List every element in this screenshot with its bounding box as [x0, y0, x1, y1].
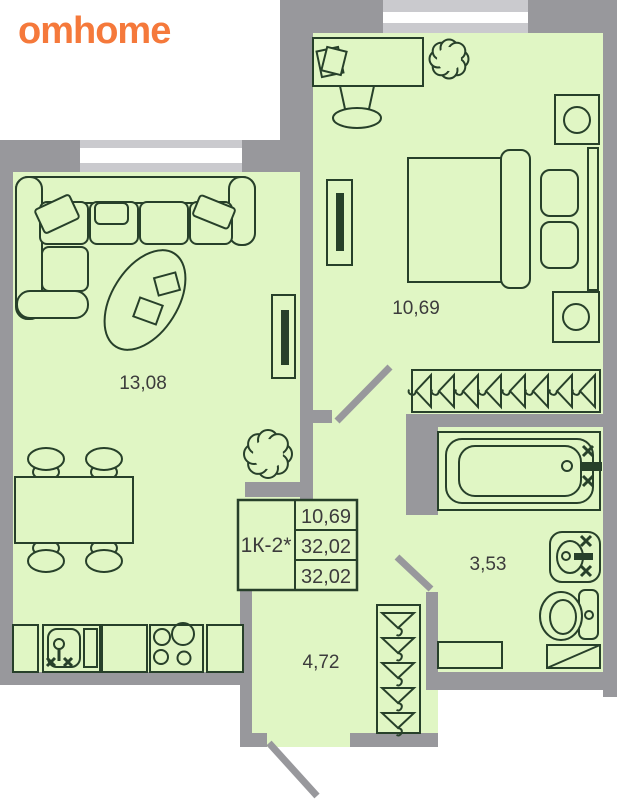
desk: [313, 38, 423, 86]
wardrobe-hallway: [377, 605, 420, 735]
nightstand-lamp: [553, 292, 599, 342]
pillow: [541, 222, 578, 268]
dining-table: [15, 477, 133, 543]
kitchen-counter: [13, 623, 243, 672]
toilet: [540, 590, 598, 640]
living-room-area-label: 13,08: [119, 373, 167, 394]
washbasin: [550, 532, 600, 582]
chair: [28, 540, 64, 572]
living-room-window: [80, 140, 242, 172]
bathtub: [438, 432, 602, 510]
unit-total-area: 32,02: [301, 536, 351, 558]
nightstand-lamp: [555, 95, 599, 144]
faucet-spout: [574, 553, 593, 560]
unit-card: 1К-2* 10,69 32,02 32,02: [238, 500, 357, 590]
unit-sale-area: 32,02: [301, 566, 351, 588]
pillow: [541, 170, 578, 216]
floor-plan-page: omhome: [0, 0, 617, 800]
unit-code: 1К-2*: [241, 534, 292, 557]
unit-room-area: 10,69: [301, 506, 351, 528]
shelf: [438, 642, 502, 668]
chair: [86, 448, 122, 480]
bedroom-window: [383, 0, 528, 33]
floor-plan: 1К-2* 10,69 32,02 32,02 13,08 10,69 3,53…: [0, 0, 617, 800]
kitchen-sink: [47, 629, 97, 667]
washing-machine: [547, 645, 600, 668]
bedroom-area-label: 10,69: [392, 298, 440, 319]
tv-living: [272, 295, 295, 378]
sofa-pillow: [95, 203, 128, 224]
entrance-door-swing: [269, 743, 317, 796]
headboard: [588, 148, 598, 290]
plant-living: [244, 430, 292, 478]
chair: [86, 540, 122, 572]
plant-bedroom: [430, 40, 469, 79]
chair: [28, 448, 64, 480]
hallway-area-label: 4,72: [303, 652, 340, 673]
bathroom-area-label: 3,53: [470, 554, 507, 575]
faucet-spout: [581, 462, 602, 471]
tv-bedroom: [327, 180, 352, 265]
wardrobe-bedroom: [409, 370, 600, 412]
